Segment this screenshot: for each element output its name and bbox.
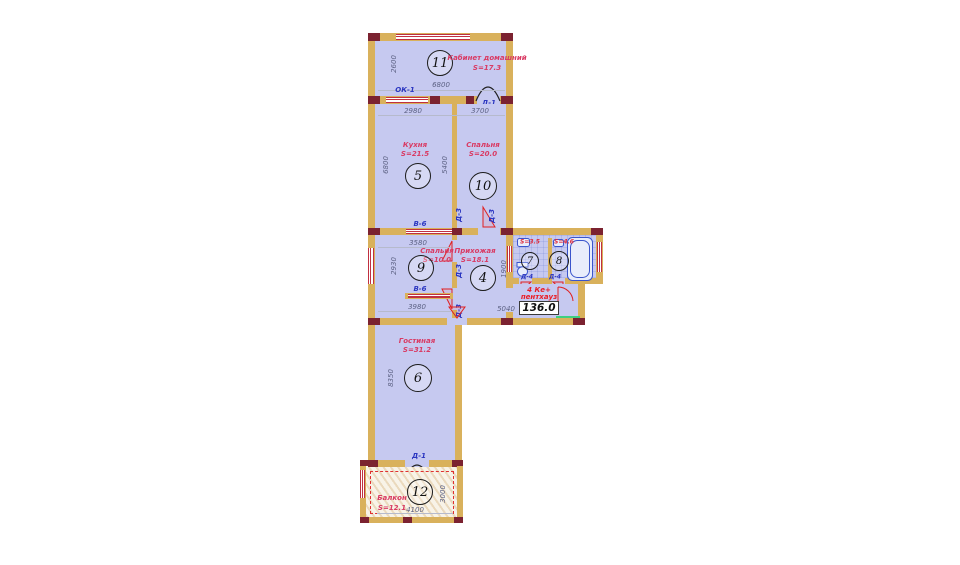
room-number: 9 [408,255,434,281]
room-8-number: 8 [556,256,562,267]
mark-d3: Д-3 [455,264,463,278]
dim-4100: 4100 [406,506,424,514]
wall-corner-block [368,33,380,41]
dimension-line [378,115,505,116]
wall [578,284,585,318]
wall [455,325,462,460]
wall-corner-block [368,96,380,104]
wall-corner-block [403,517,412,523]
total-area-value: 136.0 [522,302,555,314]
wall-corner-block [454,517,463,523]
mark-d3: Д-3 [455,208,463,222]
door-opening [447,318,467,325]
mark-d4: Д-4 [549,274,561,281]
mark-ok1: ОК-1 [395,86,414,94]
room-5-name: Кухня [403,141,427,149]
room-4-area: S=18.1 [461,256,489,264]
mark-d3: Д-3 [488,209,496,223]
room-number: 12 [407,479,433,505]
wall-corner-block [360,517,369,523]
door-swing-icon [448,306,466,319]
dim-5040: 5040 [497,305,515,313]
window-band [368,248,374,284]
room-8-area: S=4.6 [554,239,574,246]
room-10-area: S=20.0 [469,150,497,158]
wall-corner-block [430,96,440,104]
room-number: 5 [405,163,431,189]
window-band [597,242,602,272]
wall [506,41,513,104]
wall [368,318,585,325]
room-5-number: 5 [414,169,422,184]
wall-corner-block [368,228,380,235]
total-area-box: 136.0 [519,301,559,315]
wall [368,325,375,460]
dim-2930: 2930 [390,257,398,275]
dim-3700: 3700 [471,107,489,115]
dim-3000: 3000 [439,485,447,503]
wall [368,41,375,104]
wall [506,104,513,228]
room-6-area: S=31.2 [403,346,431,354]
room-number: 7 [521,252,539,270]
room-4-name: Прихожая [454,247,495,255]
wall-corner-block [501,96,513,104]
wall-corner-block [454,460,463,466]
room-11-name: Кабинет домашний [447,54,526,62]
apartment-type-line2: пентхауз [521,293,557,301]
room-6-number: 6 [414,371,422,386]
room-11-area: S=17.3 [473,64,501,72]
room-9-number: 9 [417,261,425,276]
window-band [360,470,365,498]
wall-corner-block [452,228,462,235]
room-7-area: S=3.5 [520,239,540,246]
mark-d1-balcony: Д-1 [412,452,426,460]
window-band-ok1 [386,97,428,103]
dim-8350: 8350 [387,369,395,387]
wall-corner-block [591,228,603,235]
wall-corner-block [368,460,378,467]
room-4-number: 4 [479,271,487,286]
room-12-number: 12 [412,485,429,500]
room-number: 6 [404,364,432,392]
wall-corner-block [501,228,513,235]
dim-2600: 2600 [390,55,398,73]
room-10-number: 10 [475,179,492,194]
wall-corner-block [360,460,369,466]
room-12-name: Балкон [377,494,407,502]
room-11-number: 11 [432,56,449,71]
dimension-line [378,311,451,312]
room-number: 10 [469,172,497,200]
mark-v6: В-6 [413,285,426,293]
room-5-area: S=21.5 [401,150,429,158]
mark-d4: Д-4 [521,274,533,281]
dim-3580: 3580 [409,239,427,247]
room-10-name: Спальня [466,141,500,149]
window-band-v6-bottom [408,294,450,298]
dim-2980: 2980 [404,107,422,115]
room-12-area: S=12.1 [378,504,406,512]
wall-corner-block [501,33,513,41]
room-7-number: 7 [527,256,533,267]
wall-corner-block [466,96,474,104]
window-band [396,34,470,40]
room-number: 4 [470,265,496,291]
wall [457,460,463,522]
wall-corner-block [573,318,585,325]
door-swing-icon [557,286,577,302]
room-6-name: Гостиная [399,337,435,345]
door-opening [478,228,500,235]
dim-1900: 1900 [500,260,508,278]
dim-5400: 5400 [441,156,449,174]
room-number: 8 [549,251,569,271]
room-9-name: Спальня [420,247,454,255]
window-band-v6-top [406,229,452,234]
dim-6800-left: 6800 [382,156,390,174]
dim-6800-top: 6800 [432,81,450,89]
wall-corner-block [501,318,513,325]
wall [368,104,375,228]
floor-plan: 11 Кабинет домашний S=17.3 2600 6800 ОК-… [0,0,960,565]
mark-v6: В-6 [413,220,426,228]
wall-corner-block [368,318,380,325]
dim-3980: 3980 [408,303,426,311]
